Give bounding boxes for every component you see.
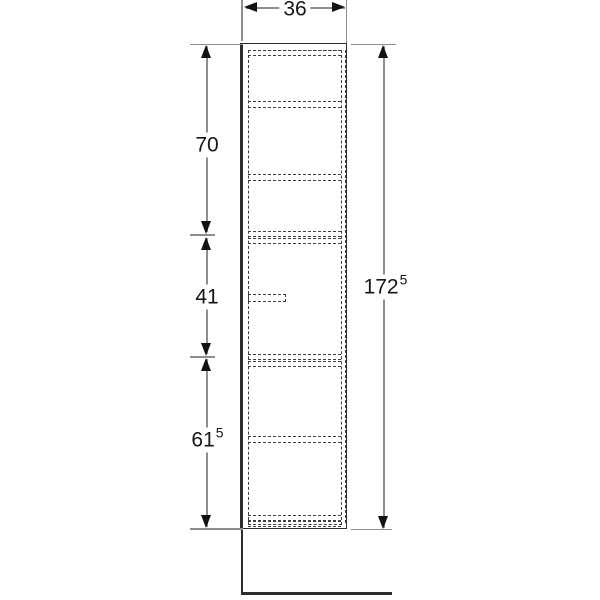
dimension-drawing: 36 70 41 615 1725 (0, 0, 600, 600)
arrow-up-icon (201, 237, 211, 250)
extension-line (190, 44, 243, 46)
dim-value: 61 (191, 429, 214, 452)
extension-line (346, 0, 348, 43)
dim-sup: 5 (400, 272, 408, 288)
extension-line (351, 529, 392, 531)
shelf-hidden-line (248, 354, 341, 360)
arrow-up-icon (378, 45, 388, 58)
dim-label-total-height: 1725 (360, 275, 411, 300)
arrow-down-icon (201, 343, 211, 356)
shelf-hidden-line (248, 231, 341, 237)
top-panel-hidden-line (248, 50, 341, 56)
shelf-hidden-line (248, 436, 341, 443)
arrow-down-icon (378, 516, 388, 529)
shelf-hidden-line (248, 361, 341, 367)
shelf-hidden-line (248, 174, 341, 181)
half-shelf-hidden-line (248, 294, 286, 302)
cabinet-carcass-hidden-outline (248, 50, 342, 525)
extension-line (351, 44, 396, 46)
shelf-hidden-line (248, 101, 341, 108)
arrow-right-icon (332, 2, 345, 12)
dim-label-upper: 70 (191, 133, 222, 158)
shelf-hidden-line (248, 238, 341, 244)
wall-profile-vertical-line (241, 530, 244, 593)
dim-value: 172 (364, 276, 399, 299)
wall-profile-horizontal-line (241, 592, 392, 595)
dim-sup: 5 (216, 425, 224, 441)
extension-line (190, 234, 215, 236)
bottom-panel-hidden-line (248, 521, 341, 527)
dim-label-width: 36 (279, 0, 310, 22)
dim-value: 41 (195, 286, 218, 309)
arrow-up-icon (201, 358, 211, 371)
extension-line (190, 528, 243, 530)
dim-label-middle: 41 (191, 285, 222, 310)
arrow-down-icon (201, 221, 211, 234)
dim-label-lower: 615 (187, 428, 226, 453)
arrow-left-icon (244, 2, 257, 12)
arrow-up-icon (201, 45, 211, 58)
cabinet-back-panel-hidden-line (345, 50, 346, 523)
dim-value: 70 (195, 134, 218, 157)
extension-line (241, 0, 243, 41)
arrow-down-icon (201, 515, 211, 528)
dim-value: 36 (283, 0, 306, 21)
